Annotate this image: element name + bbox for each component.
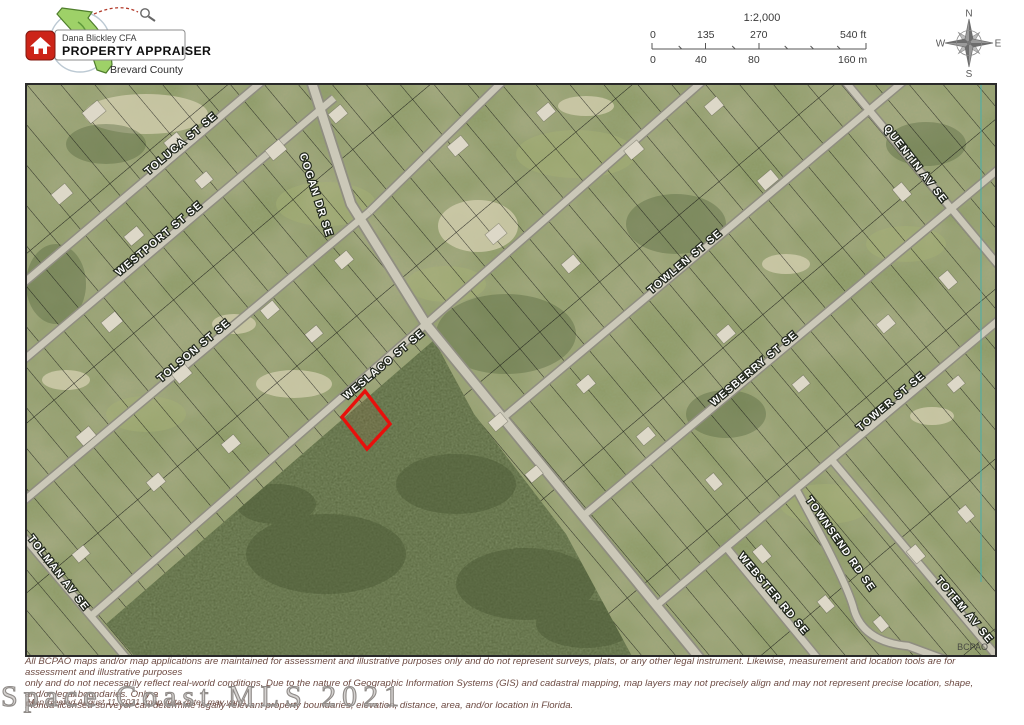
compass-south-label: S bbox=[966, 69, 973, 78]
bcpao-credit: BCPAO bbox=[957, 642, 988, 652]
compass-rose: N S E W bbox=[936, 8, 1002, 78]
property-appraiser-logo: Dana Blickley CFA PROPERTY APPRAISER Bre… bbox=[18, 4, 228, 80]
scale-bar-line bbox=[648, 42, 876, 52]
compass-east-label: E bbox=[995, 39, 1002, 50]
route-dashed-line bbox=[94, 8, 138, 14]
county-label: Brevard County bbox=[110, 64, 184, 76]
compass-north-label: N bbox=[965, 9, 972, 20]
magnifier-icon bbox=[141, 9, 155, 21]
appraiser-title: PROPERTY APPRAISER bbox=[62, 44, 211, 58]
scale-m-160: 160 m bbox=[838, 54, 867, 66]
aerial-map-canvas: TOLUCA ST SE WESTPORT ST SE TOLSON ST SE… bbox=[26, 84, 996, 656]
disclaimer-line-1: All BCPAO maps and/or map applications a… bbox=[25, 657, 993, 679]
scale-ratio: 1:2,000 bbox=[648, 12, 876, 24]
scale-ft-270: 270 bbox=[750, 29, 768, 41]
scale-m-40: 40 bbox=[695, 54, 707, 66]
scale-bar: 1:2,000 0 135 270 540 ft 0 40 80 160 m bbox=[648, 12, 876, 68]
scale-ft-540: 540 ft bbox=[840, 29, 866, 41]
house-icon bbox=[26, 31, 55, 60]
scale-m-0: 0 bbox=[650, 54, 656, 66]
aerial-map: TOLUCA ST SE WESTPORT ST SE TOLSON ST SE… bbox=[25, 83, 997, 657]
scale-ft-0: 0 bbox=[650, 29, 656, 41]
compass-west-label: W bbox=[936, 39, 946, 50]
scale-m-80: 80 bbox=[748, 54, 760, 66]
scale-ft-135: 135 bbox=[697, 29, 715, 41]
mls-watermark: Space Coast MLS 2021 bbox=[1, 680, 405, 714]
appraiser-name: Dana Blickley CFA bbox=[62, 33, 137, 43]
